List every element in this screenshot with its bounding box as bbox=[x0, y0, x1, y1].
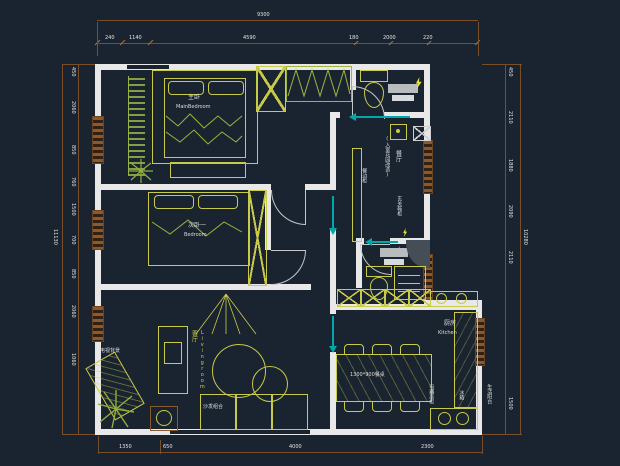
burner-icon bbox=[456, 412, 469, 425]
basin-counter bbox=[380, 248, 408, 257]
dim-top-4: 180 bbox=[348, 36, 360, 41]
room-label-bedroom2-cn: 次卧一 bbox=[188, 222, 206, 230]
label-sideboard: 餐边柜 bbox=[361, 168, 367, 183]
arrow-head-icon bbox=[329, 228, 337, 239]
dim-ext bbox=[97, 22, 98, 56]
sofa-module bbox=[272, 394, 308, 430]
door-arc-bedroom2 bbox=[271, 250, 306, 285]
hall-cabinet-cell bbox=[337, 289, 361, 307]
door-leaf-bedroom2 bbox=[271, 250, 305, 251]
room-label-master-cn: 主卧 bbox=[188, 94, 200, 102]
arrow-head-icon bbox=[345, 113, 356, 121]
blanket-linework bbox=[164, 108, 244, 152]
label-entry-cabinet: 玄关鞋柜 bbox=[396, 196, 402, 216]
window-left-master bbox=[92, 116, 104, 164]
dim-ext bbox=[482, 64, 522, 65]
wall-corridor-upper bbox=[330, 112, 336, 190]
dim-top-5: 2000 bbox=[382, 36, 397, 41]
door-arc-master bbox=[271, 190, 306, 225]
dim-bottom-1: 1350 bbox=[118, 445, 133, 450]
arrow-head-icon bbox=[361, 238, 372, 246]
burner-icon bbox=[438, 412, 451, 425]
dim-right-5: 2110 bbox=[507, 250, 512, 265]
drain-dot bbox=[396, 129, 400, 133]
dim-left-5: 1500 bbox=[70, 202, 75, 217]
burner-icon bbox=[436, 293, 447, 304]
planter-box bbox=[150, 406, 178, 431]
label-service-balcony: 生活阳台 bbox=[486, 384, 492, 404]
burner-icon bbox=[456, 293, 467, 304]
dim-left-1: 450 bbox=[70, 66, 75, 78]
slide-arrow-kitchen bbox=[332, 316, 334, 348]
slide-arrow-hall bbox=[332, 196, 334, 230]
toilet-tank bbox=[360, 70, 388, 82]
entry-mat-icon bbox=[413, 126, 431, 141]
wall-bath1-bottom-left bbox=[330, 112, 340, 118]
room-label-dining-cn: 餐厅 bbox=[394, 150, 402, 162]
label-dining-table: 1300*900餐桌 bbox=[350, 372, 385, 378]
dim-top-overall: 9300 bbox=[256, 13, 271, 18]
dim-bottom-3: 4000 bbox=[288, 445, 303, 450]
wardrobe-cabinet bbox=[248, 190, 267, 286]
dim-left-9: 1060 bbox=[70, 352, 75, 367]
wall-corridor-lower bbox=[330, 228, 336, 306]
wardrobe-hanging-rail bbox=[286, 66, 352, 102]
dim-line-right-chain bbox=[505, 64, 506, 435]
sofa-module bbox=[236, 394, 272, 430]
dining-chair bbox=[344, 401, 364, 412]
dim-line-bottom-chain bbox=[98, 452, 482, 453]
room-label-kitchen-en: Kitchen bbox=[438, 330, 457, 336]
pillow bbox=[208, 81, 244, 95]
dim-ext bbox=[482, 436, 483, 454]
dim-right-overall: 10280 bbox=[522, 228, 527, 246]
room-label-dining-note: (入室花园改造) bbox=[384, 136, 390, 178]
window-right-dining bbox=[423, 140, 433, 194]
wall-kitchen-left-a bbox=[330, 304, 336, 314]
dim-ext bbox=[98, 436, 99, 454]
dim-right-2: 2110 bbox=[507, 110, 512, 125]
room-label-living-cn: 客厅 bbox=[190, 330, 198, 342]
cabinet-line bbox=[398, 275, 420, 276]
dim-ext bbox=[62, 64, 95, 65]
basin bbox=[392, 95, 414, 101]
dim-left-overall: 11130 bbox=[52, 228, 57, 246]
sofa-module bbox=[200, 394, 236, 430]
plant-icon bbox=[96, 388, 136, 430]
dining-chair bbox=[344, 344, 364, 355]
plant-icon bbox=[128, 158, 154, 184]
pillow bbox=[198, 195, 238, 209]
room-label-bedroom2-en: Bedroom bbox=[184, 232, 207, 238]
pillow bbox=[168, 81, 204, 95]
basin-counter bbox=[388, 84, 418, 93]
dim-bottom-4: 2300 bbox=[420, 445, 435, 450]
toilet-tank bbox=[366, 266, 392, 277]
dining-chair bbox=[372, 401, 392, 412]
dim-line-top-overall bbox=[97, 20, 478, 21]
slide-arrow-bath2 bbox=[368, 241, 398, 243]
window-left-bedroom2 bbox=[92, 210, 104, 250]
dim-ext bbox=[478, 22, 479, 56]
window-left-living bbox=[92, 306, 104, 342]
dim-left-8: 2060 bbox=[70, 304, 75, 319]
dim-right-3: 1880 bbox=[507, 158, 512, 173]
dining-chair bbox=[372, 344, 392, 355]
dim-ext bbox=[62, 434, 95, 435]
dim-top-2: 1140 bbox=[128, 36, 143, 41]
cabinet-line bbox=[398, 291, 420, 292]
wardrobe-cabinet bbox=[256, 66, 286, 112]
wall-master-divider bbox=[95, 184, 271, 190]
dim-left-7: 850 bbox=[70, 268, 75, 280]
floor-drain-icon bbox=[390, 124, 407, 140]
planter-pot bbox=[156, 410, 172, 426]
dim-left-6: 700 bbox=[70, 234, 75, 246]
dim-line-left-chain bbox=[78, 64, 79, 435]
dim-left-3: 850 bbox=[70, 144, 75, 156]
wall-bedroom2-bottom bbox=[95, 284, 311, 290]
pillow bbox=[154, 195, 194, 209]
room-label-master-en: MainBedroom bbox=[176, 104, 211, 110]
dim-line-left-overall bbox=[62, 64, 63, 435]
dim-ext bbox=[482, 434, 522, 435]
sideboard-cabinet bbox=[352, 148, 362, 242]
dim-ext bbox=[160, 440, 161, 454]
dim-right-1: 450 bbox=[507, 66, 512, 78]
door-leaf-master bbox=[305, 190, 306, 224]
label-fridge: 冰箱 bbox=[458, 390, 464, 400]
label-sofa: 沙发组合 bbox=[203, 404, 223, 410]
tv-cabinet-inner bbox=[164, 342, 182, 364]
bed-end-bench bbox=[170, 162, 246, 178]
dim-line-top-chain bbox=[97, 43, 478, 44]
dim-top-6: 220 bbox=[422, 36, 434, 41]
room-label-kitchen-cn: 厨房 bbox=[444, 320, 456, 328]
dim-right-6: 1500 bbox=[507, 396, 512, 411]
shower-corner bbox=[406, 240, 430, 268]
dim-left-4: 760 bbox=[70, 176, 75, 188]
dim-top-1: 240 bbox=[104, 36, 116, 41]
dim-bottom-2: 650 bbox=[162, 445, 174, 450]
dining-chair bbox=[400, 344, 420, 355]
basin bbox=[384, 259, 404, 265]
cabinet-line bbox=[398, 283, 420, 284]
dining-chair bbox=[400, 401, 420, 412]
slide-arrow-corridor bbox=[352, 116, 410, 118]
cad-floorplan-canvas: 9300 240 1140 4590 180 2000 220 11130 45… bbox=[0, 0, 620, 466]
dim-right-4: 2090 bbox=[507, 204, 512, 219]
light-symbol-icon bbox=[402, 228, 408, 237]
room-label-living-en: Livingroom bbox=[199, 330, 205, 390]
washer-cabinet bbox=[394, 266, 426, 300]
dim-left-2: 2060 bbox=[70, 100, 75, 115]
dim-top-3: 4590 bbox=[242, 36, 257, 41]
dim-line-right-overall bbox=[520, 64, 521, 435]
